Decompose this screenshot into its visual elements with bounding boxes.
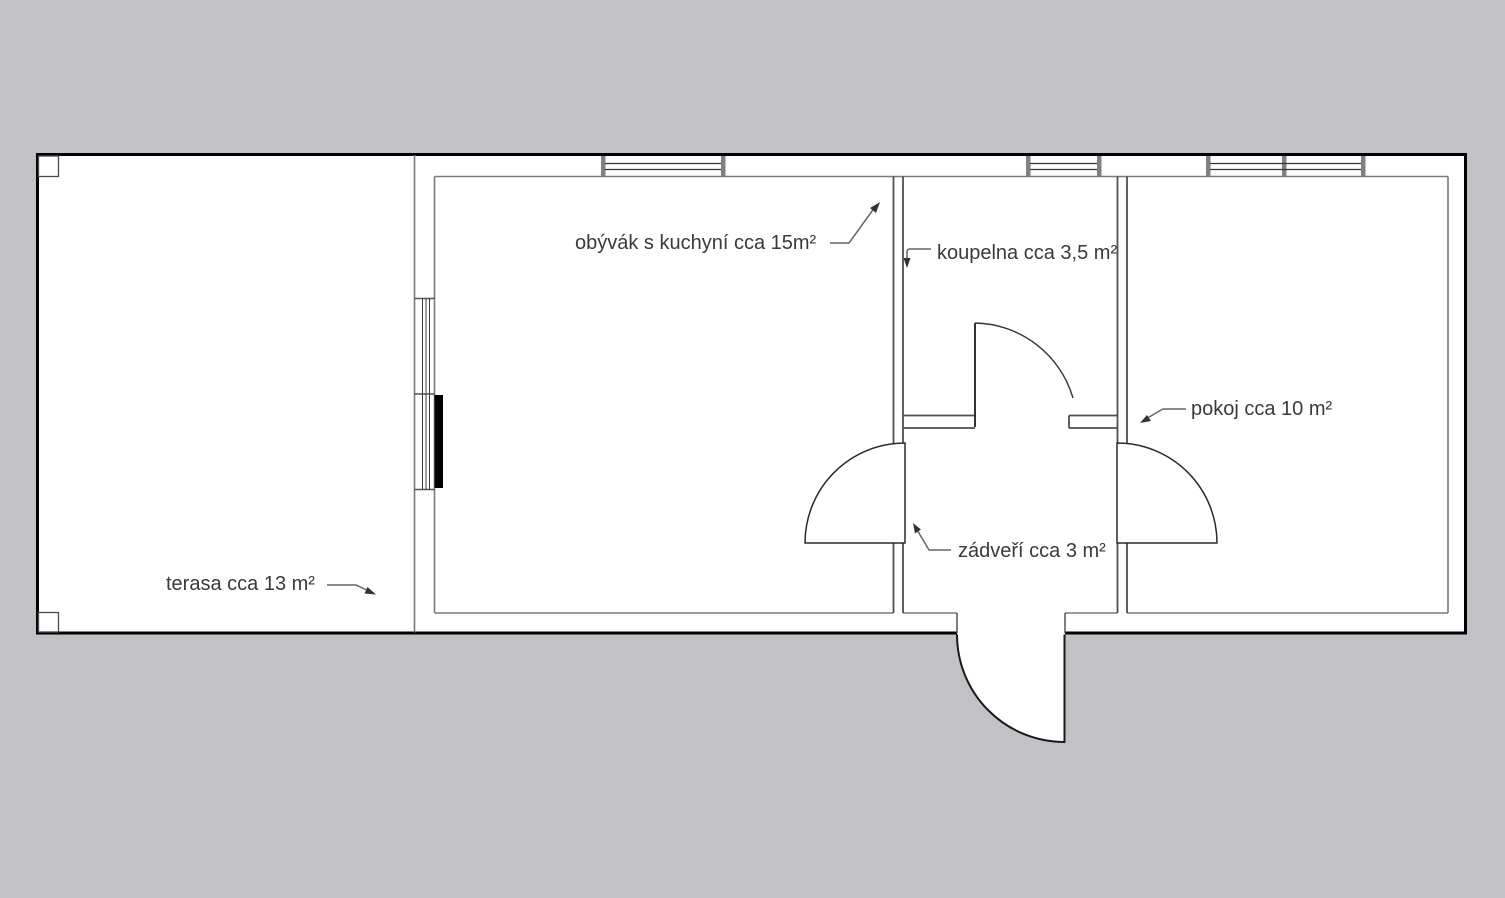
floor-plan-canvas: obývák s kuchyní cca 15m² koupelna cca 3… — [0, 0, 1505, 898]
room-label-vestibule: zádveří cca 3 m² — [958, 540, 1106, 562]
room-label-living-room: obývák s kuchyní cca 15m² — [575, 232, 816, 254]
floor-plan-drawing — [0, 0, 1505, 898]
room-label-bathroom: koupelna cca 3,5 m² — [937, 242, 1117, 264]
open-door-leaf-mark — [435, 395, 444, 488]
plan-footprint — [36, 153, 1467, 634]
room-label-room: pokoj cca 10 m² — [1191, 398, 1332, 420]
room-label-terrace: terasa cca 13 m² — [166, 573, 315, 595]
